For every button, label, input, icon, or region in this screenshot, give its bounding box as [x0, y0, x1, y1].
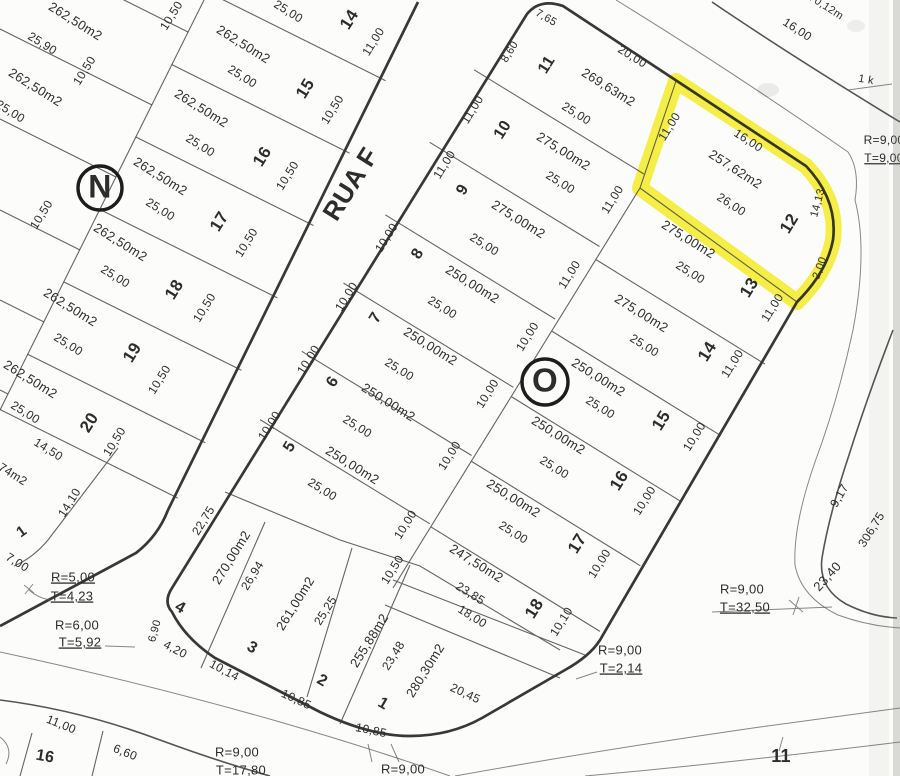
lot-area-label: 269,63m2 [579, 65, 638, 110]
dimension-label: 10,00 [630, 483, 659, 517]
dimension-label: 25,00 [425, 293, 459, 322]
lot-number-label: 16 [606, 467, 632, 494]
lot-area-label: 250,00m2 [484, 476, 543, 521]
lot-number-label: 9 [453, 181, 472, 198]
lot-number-label: 18 [521, 595, 547, 622]
dimension-label: 10,50 [273, 158, 302, 192]
dimension-label: 25,00 [51, 330, 85, 359]
dimension-label: 25,00 [183, 131, 217, 160]
lot-area-label: 262,50m2 [6, 65, 65, 110]
dimension-label: 25,00 [467, 230, 501, 259]
dimension-label: 20,00 [615, 42, 649, 71]
scan-edge-shadow [893, 0, 900, 776]
lot-area-label: 262,50m2 [172, 86, 231, 131]
lot-number-label: 12 [776, 210, 802, 237]
lot-number-label: 16 [35, 747, 56, 767]
dimension-label: 10,00 [513, 319, 542, 353]
dimension-label: 11,00 [458, 93, 486, 126]
radius-annotation-label: T=32,50 [720, 599, 770, 614]
radius-annotation-label: T=4,23 [51, 588, 94, 603]
plat-map-canvas: 262,50m225,9010,50262,50m210,5025,0010,5… [0, 0, 900, 776]
lot-area-label: 280,30m2 [403, 641, 448, 700]
dimension-label: 10,50 [157, 0, 186, 33]
dimension-label: 25,00 [537, 453, 571, 482]
dimension-label: 25,00 [143, 195, 177, 224]
radius-annotation-label: R=6,00 [55, 617, 99, 632]
dimension-label: 9,17 [827, 481, 851, 509]
lot-area-label: 275,00m2 [534, 129, 593, 174]
dimension-label: 25,00 [543, 168, 577, 197]
lot-number-label: 7 [366, 309, 385, 326]
radius-annotation-label: T=17,80 [216, 762, 266, 776]
map-labels: 262,50m225,9010,50262,50m210,5025,0010,5… [0, 0, 900, 776]
scan-smudge [757, 83, 779, 97]
dimension-label: 25,00 [271, 0, 305, 26]
lot-area-label: 250,00m2 [323, 443, 382, 488]
dimension-label: 10,00 [332, 279, 361, 313]
block-marker-letter: O [532, 362, 558, 399]
scan-band [869, 0, 889, 776]
radius-annotation-label: R=9,00 [381, 761, 425, 776]
scan-smudge [847, 20, 865, 32]
block-marker-letter: N [88, 168, 111, 204]
dimension-label: 26,94 [238, 558, 267, 592]
dimension-label: 25,00 [627, 331, 661, 360]
dimension-label: 26,00 [714, 190, 748, 219]
lot-number-label: 20 [76, 409, 102, 436]
dimension-label: 10,85 [279, 686, 314, 712]
dimension-label: 10,00 [372, 220, 401, 254]
dimension-label: 10,00 [585, 546, 614, 580]
lot-number-label: 2 [314, 671, 330, 690]
road-lines [0, 0, 900, 776]
lot-number-label: 6 [323, 373, 342, 390]
lot-area-label: 275,00m2 [612, 291, 671, 336]
dimension-label: 25,00 [673, 258, 707, 287]
dimension-label: 11,00 [718, 347, 746, 380]
dimension-label: 14,10 [55, 485, 84, 519]
dimension-label: 25,00 [225, 62, 259, 91]
lot-area-label: 262,50m2 [131, 154, 190, 199]
dimension-label: 6,60 [111, 741, 139, 763]
dimension-label: 16,00 [780, 15, 814, 44]
dimension-label: 7,00 [3, 550, 31, 575]
dimension-label: 25,00 [382, 355, 416, 384]
dimension-label: 10,00 [391, 507, 420, 541]
lot-area-label: 247,50m2 [447, 541, 506, 586]
lot-number-label: 19 [119, 339, 145, 366]
dimension-label: 10,14 [207, 657, 241, 684]
dimension-label: 10,50 [232, 225, 261, 259]
dimension-label: 10,10 [547, 604, 576, 638]
radius-annotation-label: R=5,00 [51, 569, 95, 584]
lot-area-label: 250,00m2 [401, 324, 460, 369]
block-n-back-line [0, 0, 208, 410]
dimension-label: 23,48 [379, 638, 408, 672]
lot-number-label: 10 [491, 118, 515, 143]
lot-number-label: 11 [535, 53, 559, 77]
dimension-label: 10,00 [294, 342, 323, 376]
lot-area-label: 7,74m2 [0, 454, 30, 488]
lot-area-label: 250,00m2 [569, 355, 628, 400]
lot-number-label: 17 [206, 208, 232, 235]
dimension-label: 70,12m [807, 0, 846, 22]
lot-number-label: 15 [648, 407, 674, 434]
dimension-label: 25,00 [496, 518, 530, 547]
dimension-label: 4,20 [161, 637, 189, 661]
dimension-label: 10,50 [70, 53, 99, 87]
dimension-label: 25,00 [583, 393, 617, 422]
lot-area-label: 262,50m2 [41, 285, 100, 330]
lot-number-label: 8 [408, 245, 427, 262]
lot-number-label: 5 [280, 438, 299, 455]
lot-12-13-line [640, 188, 797, 302]
lot-number-label: 1 [375, 694, 391, 713]
dimension-label: 8,60 [499, 39, 521, 65]
dimension-label: 11,00 [359, 25, 387, 58]
dimension-label: 11,00 [598, 183, 626, 216]
dimension-label: 10,00 [473, 376, 502, 410]
radius-annotation-label: R=9,00 [720, 581, 764, 596]
bottom-left-lot-lines [20, 731, 103, 776]
dimension-label: 10,50 [100, 424, 129, 458]
lot-number-label: 14 [694, 338, 721, 365]
dimension-label: 10,50 [190, 290, 219, 324]
lot-number-label: 15 [292, 75, 318, 102]
dimension-label: 25,00 [305, 475, 339, 504]
radius-annotation-label: R=9,00 [598, 642, 642, 657]
dimension-label: 25,00 [340, 412, 374, 441]
dimension-label: 23,40 [810, 559, 844, 594]
tick-marks [368, 597, 803, 762]
dimension-label: 10,00 [255, 408, 284, 442]
dimension-label: 25,25 [311, 593, 340, 627]
lot-area-label: 250,00m2 [359, 380, 418, 425]
lot-number-label: 16 [249, 143, 275, 170]
lot-area-label: 261,00m2 [273, 574, 318, 633]
dimension-label: 10,50 [27, 197, 56, 231]
scanned-plat-map: 262,50m225,9010,50262,50m210,5025,0010,5… [0, 0, 900, 776]
lot-area-label: 262,50m2 [214, 22, 273, 67]
dimension-label: 25,00 [98, 262, 132, 291]
dimension-label: 10,00 [680, 419, 709, 453]
lot-area-label: 275,00m2 [489, 197, 548, 242]
dimension-label: 25,00 [559, 99, 593, 128]
dimension-label: 7,65 [533, 7, 559, 29]
lot-area-label: 262,50m2 [46, 0, 105, 43]
lot-number-label: 14 [336, 6, 363, 33]
dimension-label: 10,00 [435, 438, 464, 472]
curb-arc-bottom-left [0, 737, 9, 764]
dimension-label: 10,85 [354, 720, 388, 740]
lot-number-label: 11 [771, 746, 791, 766]
dimension-label: 11,00 [758, 291, 786, 324]
dimension-label: 10,50 [145, 362, 174, 396]
radius-annotation-label: T=2,14 [600, 660, 643, 675]
dimension-label: 11,00 [44, 712, 78, 736]
dimension-label: 6,90 [146, 619, 163, 644]
street-name-label: RUA F [316, 142, 384, 226]
lot-number-label: 18 [161, 276, 187, 303]
road-edge-bottom-right-1 [455, 708, 900, 776]
dimension-label: 23,85 [453, 579, 487, 608]
neighbor-block-lines [0, 2, 900, 776]
dimension-label: 25,90 [25, 29, 59, 58]
road-edge-bottom-right-2 [585, 742, 900, 776]
scan-artifacts [757, 0, 900, 776]
dimension-label: 18,00 [455, 602, 489, 631]
radius-annotation-label: T=5,92 [59, 634, 102, 649]
dimension-label: 10,50 [318, 92, 347, 126]
block-n-lot-lines [0, 0, 386, 566]
lot-number-label: 3 [244, 638, 260, 657]
radius-annotation-label: R=9,00 [215, 744, 259, 759]
lot-area-label: 262,50m2 [91, 220, 150, 265]
lot-number-label: 1 [13, 522, 30, 541]
lot-number-label: 17 [564, 530, 590, 557]
lot-area-label: 262,50m2 [1, 357, 60, 402]
dimension-label: 20,45 [448, 680, 483, 706]
lot-area-label: 250,00m2 [529, 413, 588, 458]
